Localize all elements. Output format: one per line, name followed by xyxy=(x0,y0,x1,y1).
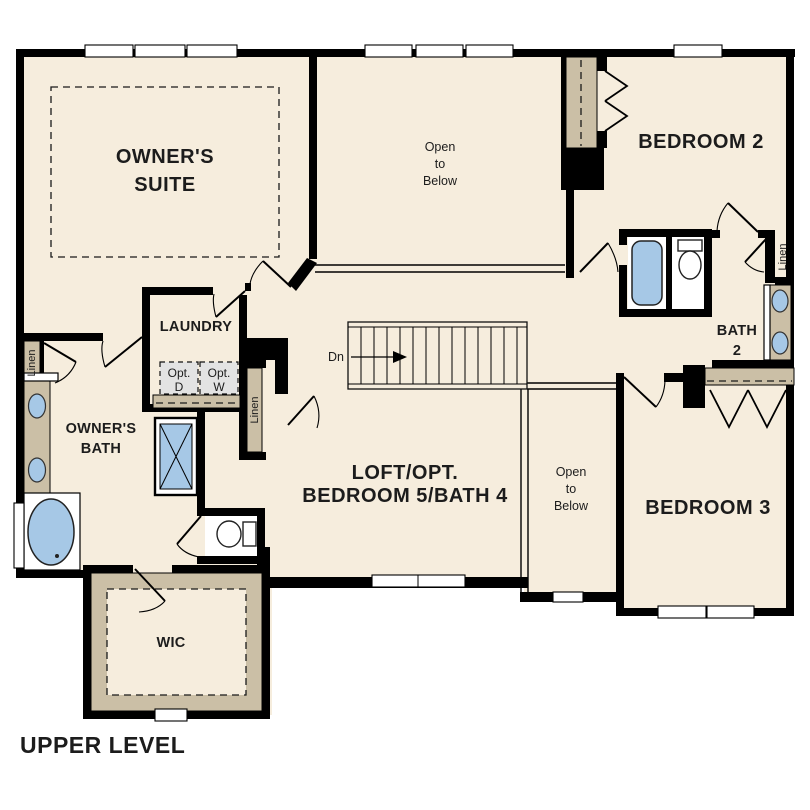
wall-segment xyxy=(172,565,262,573)
wall-segment xyxy=(247,338,288,360)
window xyxy=(85,45,133,57)
opt-washer-label-2: W xyxy=(213,380,225,394)
room-label-bedroom3: BEDROOM 3 xyxy=(645,497,771,519)
laundry-counter xyxy=(153,395,240,408)
wall-segment xyxy=(712,360,794,368)
label-open-to-below-center-1: Open xyxy=(556,465,587,479)
wall-segment xyxy=(597,57,607,71)
wall-segment xyxy=(16,333,103,341)
wall-segment xyxy=(245,283,251,291)
wall-segment xyxy=(616,373,624,616)
toilet xyxy=(678,240,702,279)
vanity-sink xyxy=(29,458,46,482)
bathtub xyxy=(24,493,80,570)
label-open-to-below-center-3: Below xyxy=(554,499,589,513)
wall-segment xyxy=(275,360,288,394)
wall-segment xyxy=(561,148,604,190)
wall-segment xyxy=(142,287,150,412)
room-label-loft-2: BEDROOM 5/BATH 4 xyxy=(302,485,508,507)
label-open-to-below-center-2: to xyxy=(566,482,576,496)
opt-dryer-label-2: D xyxy=(175,380,184,394)
window xyxy=(135,45,185,57)
wall-segment xyxy=(619,229,627,245)
wall-segment xyxy=(704,229,712,317)
room-label-bath2-1: BATH xyxy=(717,323,757,339)
room-label-owners-suite: OWNER'S xyxy=(116,146,214,168)
window xyxy=(707,606,754,618)
staircase: Dn xyxy=(328,322,527,389)
label-open-to-below-top-2: to xyxy=(435,157,445,171)
label-open-to-below-top-1: Open xyxy=(425,140,456,154)
wall-segment xyxy=(765,237,775,283)
wall-segment xyxy=(683,365,705,408)
wall-segment xyxy=(620,229,712,237)
room-label-owners-bath-2: BATH xyxy=(81,441,121,457)
room-label-bedroom2: BEDROOM 2 xyxy=(638,131,764,153)
opt-dryer-label-1: Opt. xyxy=(168,366,191,380)
bath2-vanity-edge xyxy=(764,285,770,360)
plan-title: UPPER LEVEL xyxy=(20,732,185,758)
room-label-owners-bath-1: OWNER'S xyxy=(66,421,137,437)
wall-segment xyxy=(247,452,266,460)
room-label-wic: WIC xyxy=(156,635,185,651)
wall-segment xyxy=(197,556,265,564)
window xyxy=(674,45,722,57)
window xyxy=(553,592,583,602)
wall-segment xyxy=(712,230,720,238)
window xyxy=(155,709,187,721)
label-linen-hall: Linen xyxy=(249,397,261,424)
floor-plan: Opt. D Opt. W xyxy=(0,0,810,810)
stairs-down-label: Dn xyxy=(328,350,344,364)
shower xyxy=(155,418,197,495)
wall-segment xyxy=(16,49,24,578)
window xyxy=(187,45,237,57)
wall-segment xyxy=(239,295,247,460)
vanity-sink xyxy=(772,290,788,312)
toilet xyxy=(217,521,256,547)
wall-segment xyxy=(16,570,91,578)
label-linen-left: Linen xyxy=(26,350,38,377)
wall-segment xyxy=(247,360,266,368)
bathtub xyxy=(632,241,662,305)
vanity-sink xyxy=(772,332,788,354)
label-open-to-below-top-3: Below xyxy=(423,174,458,188)
wall-segment xyxy=(664,373,683,382)
wall-segment xyxy=(142,287,213,295)
window xyxy=(466,45,513,57)
wall-segment xyxy=(197,508,265,516)
room-label-laundry: LAUNDRY xyxy=(160,319,232,335)
bedroom3-closet-shelf xyxy=(705,368,794,385)
wall-segment xyxy=(597,131,607,148)
wall-segment xyxy=(775,277,794,285)
wall-segment xyxy=(758,230,775,238)
wall-segment xyxy=(620,309,712,317)
room-label-owners-suite-2: SUITE xyxy=(134,174,195,196)
opt-washer-label-1: Opt. xyxy=(208,366,231,380)
vanity-sink xyxy=(29,394,46,418)
window xyxy=(416,45,463,57)
window xyxy=(365,45,412,57)
wall-segment xyxy=(309,57,317,259)
wall-segment xyxy=(561,57,566,148)
room-label-loft-1: LOFT/OPT. xyxy=(352,462,459,484)
wall-segment xyxy=(83,565,133,573)
room-label-bath2-2: 2 xyxy=(733,343,741,359)
floor-plan-page: Opt. D Opt. W xyxy=(0,0,810,810)
wall-segment xyxy=(83,565,91,719)
window xyxy=(14,503,24,568)
window xyxy=(658,606,706,618)
label-linen-bath2: Linen xyxy=(777,244,789,271)
wall-segment xyxy=(262,547,270,719)
wall-segment xyxy=(666,237,672,309)
